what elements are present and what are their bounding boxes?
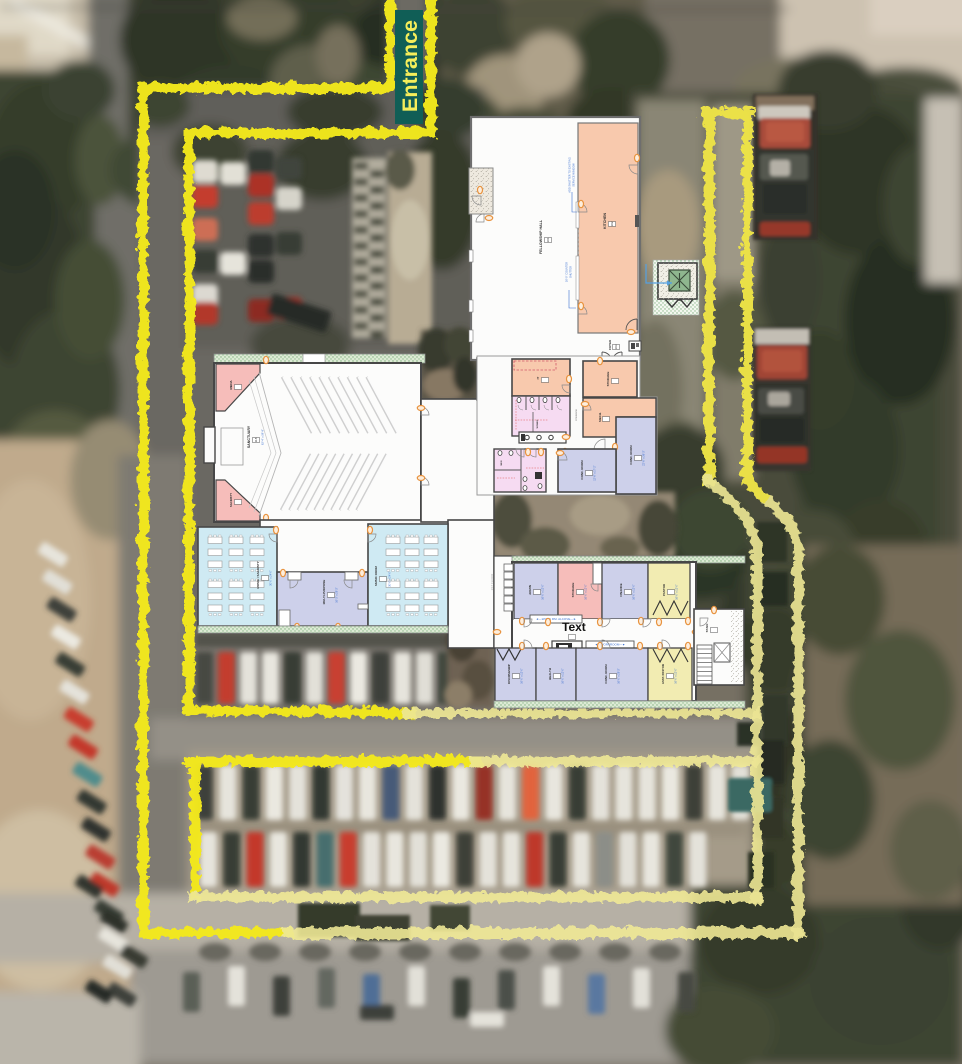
svg-text:103: 103	[614, 344, 618, 349]
svg-text:STORAGE: STORAGE	[571, 583, 575, 598]
svg-text:16'-0" x 12'-0": 16'-0" x 12'-0"	[562, 668, 565, 683]
svg-text:STAIR: STAIR	[705, 623, 709, 633]
svg-text:16'-3" x 28'-3": 16'-3" x 28'-3"	[336, 587, 339, 602]
svg-text:WOMEN: WOMEN	[537, 419, 539, 428]
svg-text:Entrance: Entrance	[398, 20, 422, 112]
svg-text:16'-0" COUNTER: 16'-0" COUNTER	[565, 262, 569, 282]
svg-text:MUSIC ROOM: MUSIC ROOM	[374, 566, 378, 586]
svg-text:MULTI-PURPOSE: MULTI-PURPOSE	[322, 580, 326, 605]
svg-text:FOYER: FOYER	[608, 339, 612, 350]
svg-text:ASST. PASTOR: ASST. PASTOR	[661, 664, 665, 684]
svg-text:MEN: MEN	[501, 460, 503, 465]
svg-text:62'-4" x 59'-9": 62'-4" x 59'-9"	[261, 429, 265, 445]
svg-text:ADD SHUTTER TO EXISTING: ADD SHUTTER TO EXISTING	[568, 157, 572, 193]
svg-text:SACRISTY: SACRISTY	[229, 493, 233, 507]
svg-text:16'-0" x 12'-0": 16'-0" x 12'-0"	[585, 584, 588, 599]
svg-text:SERVICE WINDOW: SERVICE WINDOW	[572, 163, 576, 187]
svg-text:MECH.: MECH.	[598, 412, 602, 422]
svg-text:30'-0" x 24'-0": 30'-0" x 24'-0"	[389, 571, 392, 586]
svg-text:16'-0" x 12'-0": 16'-0" x 12'-0"	[633, 584, 636, 599]
svg-text:16'-0" x 12'-0": 16'-0" x 12'-0"	[542, 584, 545, 599]
svg-text:CONF. ROOM: CONF. ROOM	[604, 664, 608, 684]
svg-text:SHUTTER: SHUTTER	[569, 266, 573, 278]
svg-text:PASTOR: PASTOR	[662, 583, 666, 596]
svg-text:ADMIN: ADMIN	[528, 585, 532, 595]
svg-text:CORRIDOR: CORRIDOR	[576, 409, 578, 421]
svg-text:Text: Text	[562, 620, 586, 634]
svg-text:CONF. ROOM: CONF. ROOM	[629, 445, 633, 465]
svg-text:102: 102	[610, 221, 614, 226]
svg-text:118: 118	[254, 437, 258, 442]
svg-text:MEDIA: MEDIA	[229, 380, 233, 389]
svg-text:1ST FLOOR: 1ST FLOOR	[490, 573, 494, 590]
svg-text:FELLOWSHIP HALL: FELLOWSHIP HALL	[539, 219, 543, 254]
svg-text:101: 101	[546, 237, 550, 242]
svg-text:22'-6" x 36'-3": 22'-6" x 36'-3"	[643, 450, 646, 465]
svg-text:16'-0" x 28'-3": 16'-0" x 28'-3"	[618, 668, 621, 683]
svg-text:16'-0" x 12'-0": 16'-0" x 12'-0"	[521, 668, 524, 683]
svg-text:CONF. ROOM: CONF. ROOM	[580, 460, 584, 480]
svg-text:16'-0" x 12'-0": 16'-0" x 12'-0"	[676, 584, 679, 599]
svg-text:SANCTUARY: SANCTUARY	[247, 425, 251, 448]
svg-text:HEALTH: HEALTH	[548, 668, 552, 680]
svg-text:STORAGE: STORAGE	[606, 372, 610, 387]
svg-text:IT: IT	[536, 377, 540, 380]
svg-text:MUSIC / SACRISTY: MUSIC / SACRISTY	[256, 561, 260, 588]
svg-text:12'-6" x 17'-2": 12'-6" x 17'-2"	[594, 465, 597, 480]
svg-text:30'-0" x 24'-0": 30'-0" x 24'-0"	[270, 570, 273, 585]
svg-text:16'-0" x 12'-0": 16'-0" x 12'-0"	[675, 668, 678, 683]
svg-text:KITCHEN: KITCHEN	[603, 213, 607, 229]
svg-text:FINANCE: FINANCE	[619, 583, 623, 596]
svg-text:DISCIPLESHIP: DISCIPLESHIP	[507, 664, 511, 684]
